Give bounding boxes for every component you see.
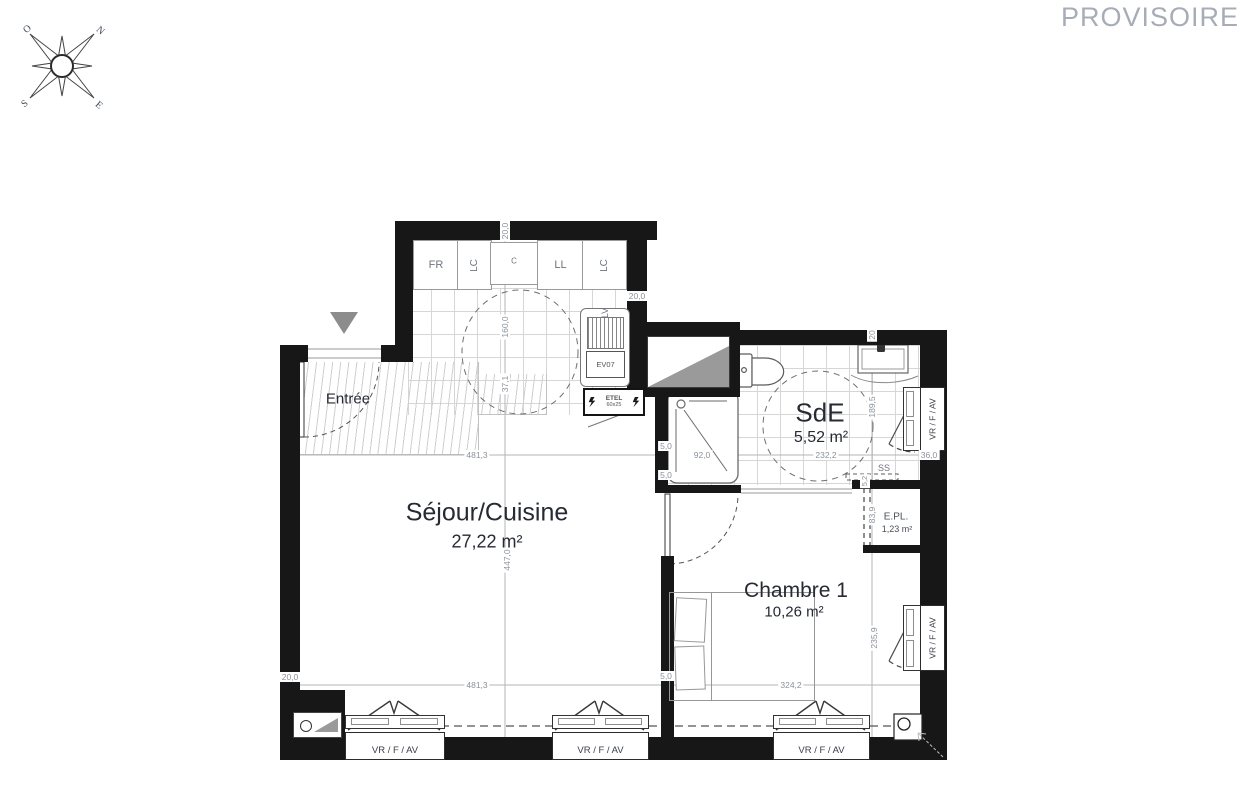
room-label-sde: SdE bbox=[795, 398, 844, 429]
downpipe-icon bbox=[898, 718, 910, 730]
dim-bottom-left-20: 20,0 bbox=[280, 672, 301, 682]
dim-shower-5a: 5,0 bbox=[658, 441, 674, 451]
dim-shower-92: 92,0 bbox=[692, 450, 713, 460]
room-label-entree: Entrée bbox=[326, 391, 370, 408]
dim-sde-20: 20 bbox=[867, 328, 877, 341]
room-area-chambre: 10,26 m² bbox=[764, 604, 823, 621]
dim-sde-width: 232,2 bbox=[813, 450, 838, 460]
room-area-epl: 1,23 m² bbox=[882, 524, 913, 534]
dim-kitchen-37: 37,1 bbox=[500, 374, 510, 395]
dim-wall-top: 20,0 bbox=[500, 221, 510, 242]
room-label-chambre: Chambre 1 bbox=[744, 579, 848, 603]
dim-bottom-width: 481,3 bbox=[464, 680, 489, 690]
dim-epl-5-2: 5,2 bbox=[860, 474, 870, 488]
dim-epl-height: 83,9 bbox=[867, 505, 877, 526]
dim-sejour-height: 447,0 bbox=[502, 547, 512, 572]
room-area-sde: 5,52 m² bbox=[794, 429, 848, 447]
dim-sde-height: 189,5 bbox=[867, 394, 877, 419]
dim-window-36: 36,0 bbox=[919, 450, 940, 460]
room-label-epl: E.PL. bbox=[884, 512, 908, 523]
dim-wall-5: 5,0 bbox=[658, 671, 674, 681]
dim-chambre-width: 324,2 bbox=[778, 680, 803, 690]
towel-rail-label: SS bbox=[878, 463, 890, 473]
dim-kitchen-right-20: 20,0 bbox=[627, 291, 648, 301]
room-label-sejour: Séjour/Cuisine bbox=[406, 499, 569, 528]
plan-overlay bbox=[0, 0, 1247, 800]
dim-sejour-width: 481,3 bbox=[464, 450, 489, 460]
dim-chambre-height: 235,9 bbox=[869, 625, 879, 650]
dim-shower-5b: 5,0 bbox=[658, 470, 674, 480]
dim-kitchen-160: 160,0 bbox=[500, 314, 510, 339]
floor-plan-page: PROVISOIRE O N S E bbox=[0, 0, 1247, 800]
